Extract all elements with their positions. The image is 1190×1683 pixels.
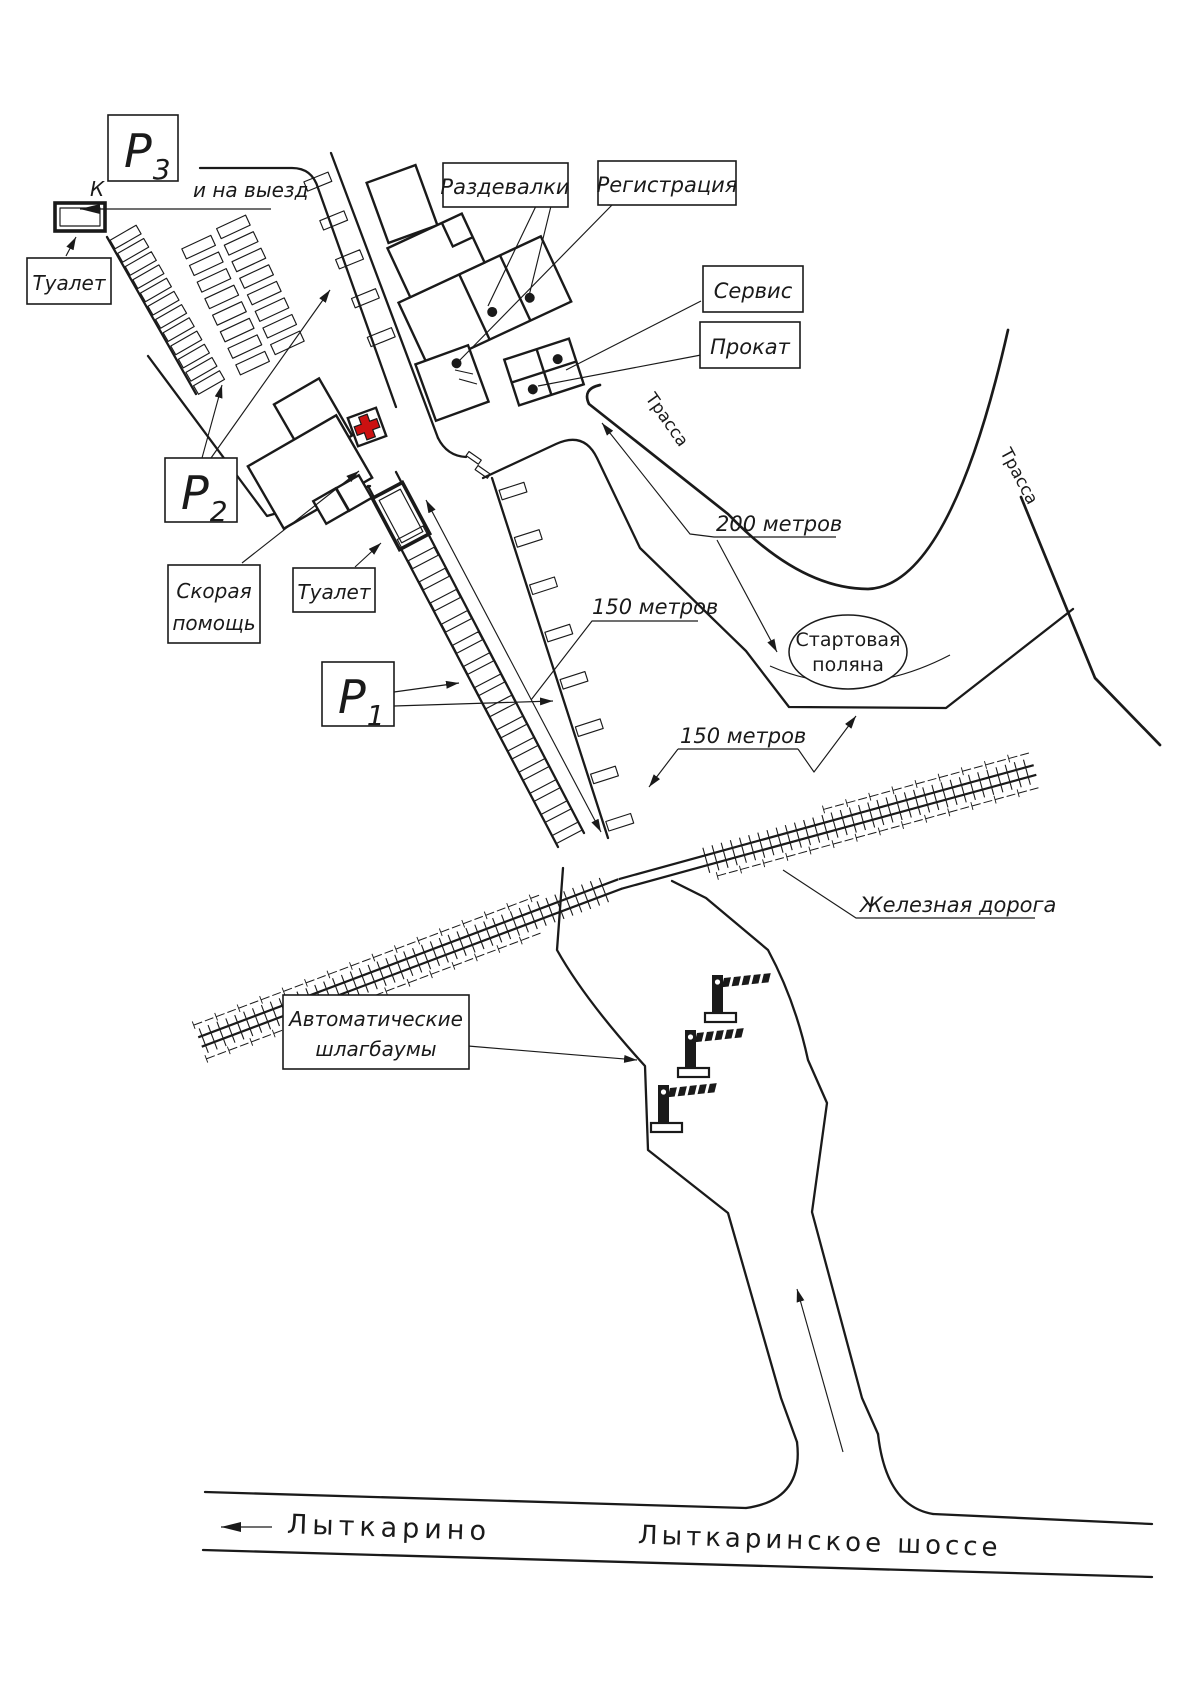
railway-tie <box>208 1025 217 1049</box>
railway-fence <box>486 912 494 915</box>
railway-tie <box>996 767 1003 792</box>
railway-fence <box>474 916 482 919</box>
railway-fence <box>508 904 516 907</box>
railway-fence <box>995 797 1004 799</box>
railway-tie <box>703 848 710 873</box>
railway-fence <box>810 848 819 850</box>
railway-fence <box>856 835 865 837</box>
parking-slot <box>186 358 217 382</box>
railway-tie <box>849 807 856 832</box>
railway-fence <box>194 1022 202 1025</box>
svg-text:помощь: помощь <box>172 611 255 635</box>
road-direction-arrow <box>797 1289 843 1452</box>
railway-tie <box>466 928 475 952</box>
railway-fence <box>532 933 540 936</box>
toilet-top-label: Туалет <box>27 258 111 304</box>
railway-fence <box>972 804 981 806</box>
parking-slot <box>552 822 582 843</box>
railway-rail <box>619 765 1034 879</box>
railway-fence <box>997 759 1006 761</box>
railway-tie <box>914 790 921 815</box>
parking-slot <box>453 632 483 653</box>
railway-fence <box>205 1018 213 1021</box>
railway-tie <box>590 881 599 905</box>
railway-tie <box>199 1028 208 1052</box>
track-label-right: Трасса <box>995 444 1042 508</box>
railway-fence <box>487 950 495 953</box>
railway-fence <box>519 899 527 902</box>
railway-tie <box>253 1008 262 1032</box>
railway-fence <box>764 861 773 863</box>
p3-letter: Р <box>124 124 152 178</box>
railway-fence <box>868 832 877 834</box>
railway-fence <box>497 908 505 911</box>
railway-fence <box>274 1030 282 1033</box>
railway-tie <box>564 891 573 915</box>
parking-slot <box>591 766 619 784</box>
highway-upper-edge-right <box>933 1514 1152 1524</box>
rental-label: Прокат <box>700 322 800 368</box>
railway-fence <box>531 895 539 898</box>
p1-arrow <box>394 701 553 706</box>
barrier-area-right-edge <box>672 881 878 1434</box>
highway-lower-edge <box>203 1550 1152 1577</box>
parking-slot <box>171 331 202 355</box>
railway-tie <box>235 1015 244 1039</box>
railway-tie <box>1005 765 1012 790</box>
dim-150-corridor-text: 150 метров <box>592 595 718 619</box>
railway-fence <box>798 851 807 853</box>
barrier-area-left-edge <box>557 868 797 1442</box>
railway-fence <box>521 937 529 940</box>
p2-building-complex <box>248 378 372 528</box>
parking-slot <box>486 695 516 716</box>
railway-tie <box>758 833 765 858</box>
railway-fence <box>775 858 784 860</box>
railway-fence <box>295 984 303 987</box>
start-glade-oval <box>789 615 907 689</box>
railway-fence <box>962 769 971 771</box>
railway-rail <box>621 775 1036 889</box>
railway-fence <box>240 1043 248 1046</box>
railway-tie <box>785 825 792 850</box>
railway-tie <box>359 968 368 992</box>
railway-tie <box>776 828 783 853</box>
railway-tie <box>261 1005 270 1029</box>
railway-tie <box>794 823 801 848</box>
railway-fence <box>373 954 381 957</box>
railway-fence <box>272 992 280 995</box>
railway-fence <box>939 775 948 777</box>
railway-fence <box>986 763 995 765</box>
railway-fence <box>833 842 842 844</box>
railway-fence <box>385 950 393 953</box>
railway-fence <box>227 1009 235 1012</box>
railway-tie <box>712 845 719 870</box>
railway-tie <box>859 805 866 830</box>
railway-fence <box>418 937 426 940</box>
railway-tie <box>395 955 404 979</box>
railway-tie <box>941 782 948 807</box>
railway-fence <box>905 785 914 787</box>
railway-fence <box>858 798 867 800</box>
railway-fence <box>881 791 890 793</box>
railway-tie <box>932 785 939 810</box>
railway-tie <box>749 835 756 860</box>
service-rental-building <box>504 339 584 406</box>
railway-tie <box>1014 762 1021 787</box>
railway-fence <box>717 874 726 876</box>
railway-tie <box>501 915 510 939</box>
gate-tick <box>466 452 481 465</box>
toilet-mid-arrow <box>355 543 381 567</box>
dim-150-glade-left-arrow <box>649 749 678 787</box>
railway-fence <box>441 929 449 932</box>
railway-fence <box>902 823 911 825</box>
venue-scheme-page: Стартовая поляна Р3 Р2 Р1 К и на выезд Т… <box>0 0 1190 1683</box>
railway-fence <box>960 807 969 809</box>
parking-slot <box>475 674 505 695</box>
railway-tie <box>831 813 838 838</box>
parking-slot <box>148 291 179 315</box>
parking-slot <box>606 814 634 832</box>
railway-tie <box>413 948 422 972</box>
railway-fence <box>431 971 439 974</box>
first-aid-station <box>348 408 386 446</box>
railway-tie <box>457 931 466 955</box>
crossroads-corner-curve <box>438 438 466 457</box>
railway-tie <box>217 1022 226 1046</box>
p1-sign: Р1 <box>322 662 394 732</box>
race-track-u-curve <box>587 330 1008 589</box>
railway-fence <box>452 925 460 928</box>
railway-fence <box>949 810 958 812</box>
svg-text:Автоматические: Автоматические <box>287 1007 463 1031</box>
railway-fence <box>362 959 370 962</box>
parking-slot <box>530 577 558 595</box>
svg-text:шлагбаумы: шлагбаумы <box>315 1037 436 1061</box>
railway-fence <box>974 766 983 768</box>
toilet-top-arrow <box>66 237 76 256</box>
railway-fence <box>251 1039 259 1042</box>
railway-fence <box>340 967 348 970</box>
railway-fence <box>729 870 738 872</box>
railway-tie <box>822 815 829 840</box>
parking-slot <box>110 225 141 249</box>
barriers-arrow <box>468 1046 637 1060</box>
railway-fence <box>239 1005 247 1008</box>
railway-fence <box>870 794 879 796</box>
railway-fence <box>420 975 428 978</box>
railway-tie <box>840 810 847 835</box>
railway-fence <box>1030 788 1039 790</box>
barrier-arm <box>721 973 772 987</box>
parking-slot <box>408 547 438 568</box>
railway-tie <box>377 962 386 986</box>
railway-fence <box>740 867 749 869</box>
railway-tie <box>804 820 811 845</box>
railway-label: Железная дорога <box>858 893 1056 917</box>
parking-slot <box>442 611 472 632</box>
parking-slot <box>464 653 494 674</box>
railway-fence <box>510 942 518 945</box>
railway-fence <box>396 946 404 949</box>
dim-150-glade-right-arrow <box>798 716 856 772</box>
railway-fence <box>1009 756 1018 758</box>
railway-fence <box>386 988 394 991</box>
railway-tie <box>430 941 439 965</box>
lytkarino-label: Лыткарино <box>287 1509 492 1547</box>
parking-slot <box>545 624 573 642</box>
railway-fence <box>351 963 359 966</box>
parking-slot <box>118 239 149 263</box>
junction-fillet-right <box>878 1434 933 1514</box>
corridor-right-boundary <box>483 440 1073 708</box>
changing-rooms-label: Раздевалки <box>440 163 569 207</box>
railway-tie <box>448 935 457 959</box>
railway-tie <box>978 772 985 797</box>
railway-tie <box>959 777 966 802</box>
parking-slot <box>530 780 560 801</box>
dim-150-glade-text: 150 метров <box>680 724 806 748</box>
p2-sign: Р2 <box>165 458 237 528</box>
railway-tie <box>386 958 395 982</box>
railway-fence <box>284 988 292 991</box>
p3-sub: 3 <box>153 153 171 186</box>
railway-tie <box>923 787 930 812</box>
svg-text:Раздевалки: Раздевалки <box>440 175 569 199</box>
parking-slot <box>419 568 449 590</box>
parking-slot <box>497 716 527 738</box>
railway-fence <box>262 1035 270 1038</box>
railway-tie <box>877 800 884 825</box>
toilet-building-top <box>55 203 105 231</box>
railway-tie <box>528 905 537 929</box>
dim-150-corridor-leader <box>531 621 698 700</box>
railway-fence <box>835 804 844 806</box>
railway-tie <box>546 898 555 922</box>
railway-fence <box>916 782 925 784</box>
railway-fence <box>328 971 336 974</box>
railway-fence <box>928 778 937 780</box>
railway-fence <box>229 1047 237 1050</box>
railway-fence <box>476 954 484 957</box>
railway-tie <box>421 945 430 969</box>
track-label-left: Трасса <box>640 389 692 451</box>
railway-fence <box>752 864 761 866</box>
railway-tie <box>270 1002 279 1026</box>
toilet-building-mid <box>372 482 429 549</box>
railway-fence <box>824 807 833 809</box>
railway-fence <box>216 1014 224 1017</box>
railway-fence <box>951 772 960 774</box>
railway-tie <box>1023 760 1030 785</box>
service-leader <box>566 301 701 370</box>
railway-fence <box>206 1056 214 1059</box>
railway-fence <box>879 829 888 831</box>
start-glade-label: Стартовая <box>795 629 900 651</box>
railway-fence <box>983 800 992 802</box>
railway-fence <box>463 921 471 924</box>
railway-fence <box>926 816 935 818</box>
parking-slot <box>336 250 364 269</box>
parking-slot <box>163 318 194 342</box>
railway-fence <box>891 826 900 828</box>
railway-fence <box>261 997 269 1000</box>
svg-text:Скорая: Скорая <box>176 579 251 603</box>
railway-fence <box>465 958 473 961</box>
toilet-mid-label: Туалет <box>293 568 375 612</box>
parking-slot <box>320 211 348 230</box>
railway-tie <box>519 908 528 932</box>
railway-tie <box>969 775 976 800</box>
k-label: К <box>90 177 105 201</box>
railway-fence <box>821 845 830 847</box>
parking-slot <box>133 265 164 289</box>
railway-tie <box>368 965 377 989</box>
parking-slot <box>560 672 588 690</box>
svg-text:Туалет: Туалет <box>32 271 106 295</box>
svg-text:Прокат: Прокат <box>710 335 791 359</box>
railway-fence <box>407 942 415 945</box>
dim-150-corridor-line <box>426 500 601 832</box>
railway-tie <box>950 780 957 805</box>
svg-text:Сервис: Сервис <box>714 279 793 303</box>
railway-tie <box>987 770 994 795</box>
p3-sign: Р3 <box>108 115 178 186</box>
highway-upper-edge-left <box>205 1492 746 1508</box>
railway-tie <box>244 1012 253 1036</box>
railway-tie <box>493 918 502 942</box>
svg-text:Регистрация: Регистрация <box>597 173 738 197</box>
railway-tie <box>721 843 728 868</box>
dim-200-text: 200 метров <box>716 512 842 536</box>
parking-slot <box>431 590 461 611</box>
venue-map: Стартовая поляна Р3 Р2 Р1 К и на выезд Т… <box>0 0 1190 1683</box>
race-track-right-line <box>1021 497 1160 745</box>
railway-fence <box>218 1051 226 1054</box>
service-label: Сервис <box>703 266 803 312</box>
railway-tie <box>767 830 774 855</box>
railway-fence <box>847 801 856 803</box>
railway-fence <box>317 976 325 979</box>
railway-tie <box>813 818 820 843</box>
parking-slot <box>499 482 527 500</box>
automatic-barrier-icon <box>651 1083 718 1132</box>
railway-fence <box>1018 791 1027 793</box>
parking-slot <box>514 530 542 548</box>
railway-tie <box>904 792 911 817</box>
registration-label: Регистрация <box>597 161 738 205</box>
railway-fence <box>937 813 946 815</box>
railway-tie <box>599 878 608 902</box>
junction-fillet-left <box>746 1442 798 1508</box>
p1-arrow <box>394 683 459 692</box>
parking-slot <box>125 252 156 276</box>
railway-fence <box>306 980 314 983</box>
railway-fence <box>442 967 450 970</box>
parking-slot <box>140 278 171 302</box>
railway-tie <box>582 885 591 909</box>
railway-fence <box>498 946 506 949</box>
railway-tie <box>573 888 582 912</box>
railway-fence <box>453 963 461 966</box>
start-glade-label: поляна <box>812 654 884 676</box>
railway-fence <box>787 854 796 856</box>
railway-fence <box>893 788 902 790</box>
to-exit-label: и на выезд <box>193 178 308 202</box>
barriers-label: Автоматические шлагбаумы <box>283 995 469 1069</box>
parking-slot <box>508 738 538 759</box>
railway-fence <box>845 839 854 841</box>
railway-tie <box>510 911 519 935</box>
automatic-barrier-icon <box>705 973 772 1022</box>
parking-slot <box>575 719 603 737</box>
railway-tie <box>740 838 747 863</box>
railway-tie <box>730 840 737 865</box>
railway-fence <box>1020 753 1029 755</box>
railway-fence <box>409 980 417 983</box>
railway-tie <box>439 938 448 962</box>
railway-fence <box>397 984 405 987</box>
railway-fence <box>430 933 438 936</box>
first-aid-label: Скорая помощь <box>168 565 260 643</box>
parking-slot <box>519 759 549 781</box>
railway-tie <box>537 901 546 925</box>
highway-label: Лыткаринское шоссе <box>638 1520 1003 1563</box>
dim-200-line-lower <box>717 540 777 652</box>
railway-tie <box>895 795 902 820</box>
svg-text:Туалет: Туалет <box>297 580 371 604</box>
railway-tie <box>404 951 413 975</box>
railway-tie <box>868 802 875 827</box>
railway-tie <box>226 1018 235 1042</box>
automatic-barrier-icon <box>678 1028 745 1077</box>
railway-tie <box>484 921 493 945</box>
parking-slot <box>156 305 187 329</box>
parking-slot <box>541 801 571 822</box>
railway-fence <box>250 1001 258 1004</box>
railway-tie <box>350 972 359 996</box>
railway-tie <box>475 925 484 949</box>
railway-fence <box>914 820 923 822</box>
parking-slot <box>178 344 209 368</box>
railway-fence <box>1007 794 1016 796</box>
railway-tie <box>886 797 893 822</box>
